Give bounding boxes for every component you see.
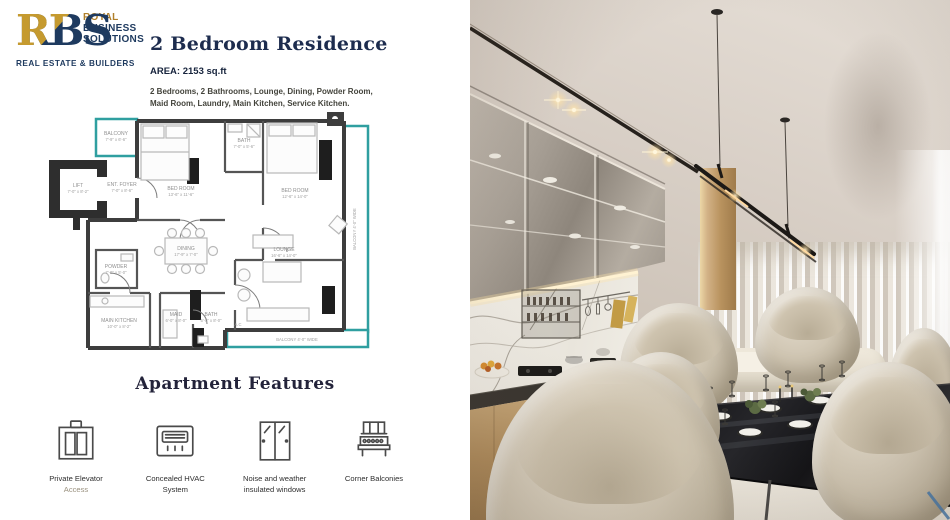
feature-label: Corner Balconies: [345, 473, 403, 484]
room-dims: 16'-6" x 14'-0": [271, 253, 297, 258]
room-dims: 10'-0" x 8'-2": [107, 324, 131, 329]
brochure-page: RBS RBS ROYAL BUSINESS SOLUTIONS REAL ES…: [0, 0, 950, 520]
feature-label: Noise and weather insulated windows: [243, 473, 306, 495]
window-icon: [252, 418, 298, 464]
room-dims: 5'-0" x 8'-0": [200, 318, 222, 323]
features-row: Private Elevator Access Concealed HVAC S…: [30, 418, 420, 495]
room-label: BALCONY 4'-0" WIDE: [352, 208, 357, 250]
elevator-icon: [53, 418, 99, 464]
rbs-logo-mark: RBS RBS: [16, 8, 78, 56]
room-dims: 7'-0" x 5'-6": [233, 144, 255, 149]
room-label: BALCONY 4'-0" WIDE: [276, 337, 318, 342]
balcony-icon: [351, 418, 397, 464]
feature-label: Private Elevator Access: [49, 473, 103, 495]
features-heading: Apartment Features: [0, 374, 470, 394]
feature-insulated-windows: Noise and weather insulated windows: [229, 418, 321, 495]
area-label: AREA: 2153 sq.ft: [150, 66, 460, 77]
room-dims: 7'-9" x 6'-6": [105, 137, 127, 142]
hvac-icon: [152, 418, 198, 464]
feature-corner-balconies: Corner Balconies: [328, 418, 420, 495]
rbs-logo: RBS RBS ROYAL BUSINESS SOLUTIONS REAL ES…: [16, 8, 166, 68]
page-title: 2 Bedroom Residence: [150, 33, 460, 55]
brochure-panel: RBS RBS ROYAL BUSINESS SOLUTIONS REAL ES…: [0, 0, 470, 520]
description-line-2: Maid Room, Laundry, Main Kitchen, Servic…: [150, 99, 349, 108]
room-dims: 13'-6" x 11'-6": [168, 192, 194, 197]
room-label: A.C: [235, 322, 242, 327]
feature-label: Concealed HVAC System: [146, 473, 205, 495]
logo-tagline: REAL ESTATE & BUILDERS: [16, 59, 166, 68]
feature-concealed-hvac: Concealed HVAC System: [129, 418, 221, 495]
room-dims: 17'-9" x 7'-0": [174, 252, 198, 257]
floor-plan: BALCONY 7'-9" x 6'-6" LIFT 7'-0" x 8'-2"…: [35, 110, 403, 360]
feature-private-elevator: Private Elevator Access: [30, 418, 122, 495]
room-dims: 6'-0" x 8'-0": [165, 318, 187, 323]
interior-photo: [470, 0, 950, 520]
room-dims: 7'-0" x 8'-2": [67, 189, 89, 194]
room-dims: 7'-0" x 8'-6": [111, 188, 133, 193]
wood-column: [700, 168, 736, 310]
description-line-1: 2 Bedrooms, 2 Bathrooms, Lounge, Dining,…: [150, 87, 373, 96]
room-dims: 7'-0" x 5'-0": [105, 270, 127, 275]
room-dims: 12'-6" x 14'-0": [282, 194, 308, 199]
residence-description: 2 Bedrooms, 2 Bathrooms, Lounge, Dining,…: [150, 86, 460, 111]
title-block: 2 Bedroom Residence AREA: 2153 sq.ft 2 B…: [150, 33, 460, 119]
